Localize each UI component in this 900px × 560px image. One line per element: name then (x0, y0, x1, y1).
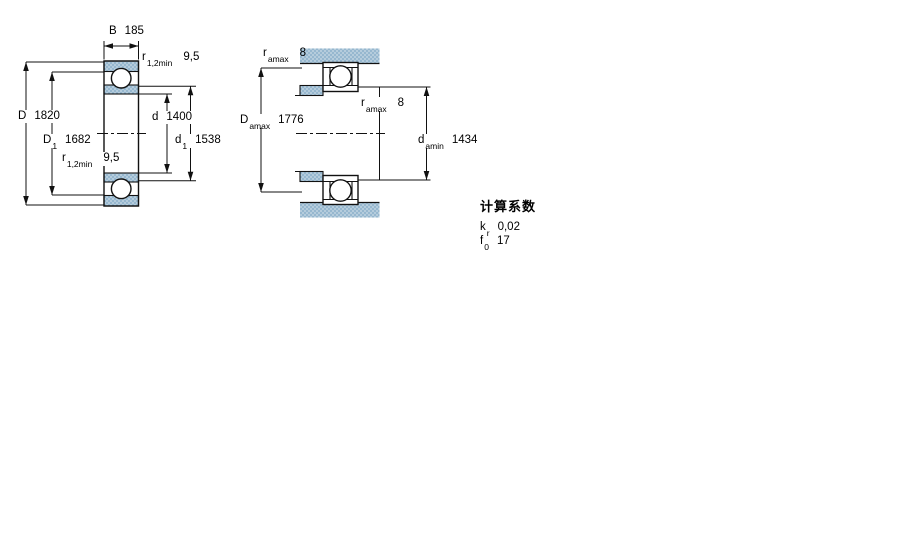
dim-label-ra-top: ramax8 (263, 47, 306, 61)
dim-value-ra-top: 8 (300, 47, 306, 59)
factor-f0-subscript: 0 (484, 242, 489, 252)
factor-f0-symbol: f (480, 235, 483, 247)
dim-label-d: d1400 (150, 111, 194, 124)
dim-label-D: D1820 (16, 110, 62, 123)
left-figure-bearing-section (97, 61, 146, 206)
ball-top-right-figure (330, 66, 351, 87)
dim-label-da: damin1434 (416, 134, 479, 148)
dim-symbol-Da: D (240, 114, 248, 126)
dim-symbol-d1: d (175, 134, 181, 146)
dim-symbol-D1: D (43, 134, 51, 146)
dim-symbol-d: d (152, 111, 158, 123)
dim-value-D1: 1682 (65, 134, 91, 146)
calculation-factors-heading: 计算系数 (480, 196, 536, 215)
dim-symbol-da: d (418, 134, 424, 146)
dim-symbol-D: D (18, 110, 26, 122)
shaft-shoulder-bottom (300, 172, 323, 182)
bearing-dimension-drawing: B185 r1,2min9,5 D1820 D11682 r1,2min9,5 … (0, 0, 900, 560)
housing-top (300, 49, 380, 64)
dim-subscript-da: amin (425, 141, 443, 151)
dim-value-r-top: 9,5 (183, 51, 199, 63)
dim-symbol-ra-top: r (263, 47, 267, 59)
factor-kr-value: 0,02 (498, 221, 520, 233)
dim-label-B: B185 (109, 25, 144, 38)
dim-symbol-ra-mid: r (361, 97, 365, 109)
dim-subscript-ra-mid: amax (366, 104, 387, 114)
right-figure-mounting-section (295, 49, 431, 218)
dim-subscript-r-top: 1,2min (147, 58, 173, 68)
dim-subscript-d1: 1 (182, 141, 187, 151)
dim-value-d: 1400 (166, 111, 192, 123)
dim-symbol-r-bottom: r (62, 152, 66, 164)
shaft-shoulder-top (300, 86, 323, 96)
factor-kr: kr0,02 (480, 221, 520, 235)
dim-subscript-r-bottom: 1,2min (67, 159, 93, 169)
dim-label-D1: D11682 (41, 134, 93, 148)
ball-bottom (111, 179, 131, 199)
dim-subscript-D1: 1 (52, 141, 57, 151)
factor-f0: f017 (480, 235, 510, 249)
dim-label-ra-mid: ramax8 (359, 97, 406, 111)
dim-value-D: 1820 (34, 110, 60, 122)
dim-label-r-bottom: r1,2min9,5 (60, 152, 121, 166)
dim-value-B: 185 (125, 25, 144, 37)
factor-f0-value: 17 (497, 235, 510, 247)
dim-value-Da: 1776 (278, 114, 304, 126)
dim-value-d1: 1538 (195, 134, 221, 146)
dim-symbol-B: B (109, 25, 117, 37)
ball-bottom-right-figure (330, 180, 351, 201)
factor-kr-symbol: k (480, 221, 486, 233)
dim-label-d1: d11538 (173, 134, 223, 148)
dim-subscript-ra-top: amax (268, 54, 289, 64)
drawing-linework (0, 0, 900, 560)
dim-symbol-r-top: r (142, 51, 146, 63)
dim-value-da: 1434 (452, 134, 478, 146)
dim-label-r-top: r1,2min9,5 (142, 51, 199, 65)
dim-label-Da: Damax1776 (238, 114, 306, 128)
dim-value-ra-mid: 8 (398, 97, 404, 109)
ball-top (111, 68, 131, 88)
dim-subscript-Da: amax (249, 121, 270, 131)
dim-value-r-bottom: 9,5 (103, 152, 119, 164)
